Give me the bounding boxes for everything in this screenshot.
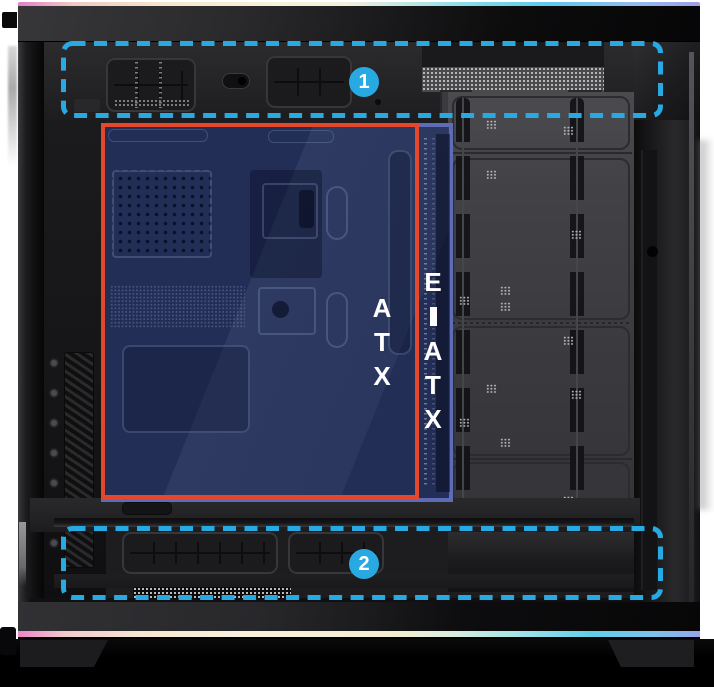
top-glass-panel: [18, 6, 700, 42]
vent-perforation: [459, 418, 470, 427]
side-shadow: [698, 140, 714, 510]
screw-icon: [375, 99, 381, 105]
bottom-fan-mount-plate-left: [122, 532, 278, 574]
panel-seam: [452, 458, 632, 460]
thumbscrew-hole: [647, 246, 658, 257]
pci-screw-column: [46, 356, 62, 564]
callout-badge-1: 1: [349, 67, 379, 97]
callout-badge-2: 2: [349, 549, 379, 579]
callout-number: 1: [358, 71, 369, 94]
shroud-groove: [54, 518, 634, 527]
pci-slot-covers: [64, 352, 94, 568]
panel-seam-dotted: [452, 322, 632, 324]
callout-number: 2: [358, 553, 369, 576]
grommet-hole: [238, 77, 246, 85]
right-inner-rail: [641, 150, 657, 590]
front-io-tab: [2, 12, 17, 28]
atx-label: ATX: [366, 291, 398, 393]
vent-perforation: [459, 296, 470, 305]
bottom-glass-panel: [18, 602, 700, 632]
vent-perforation: [500, 286, 511, 295]
vent-perforation: [486, 384, 497, 393]
rear-top-frame: [422, 42, 604, 64]
case-foot-right: [608, 640, 694, 667]
panel-seam: [452, 152, 632, 154]
mount-bracket: [74, 99, 100, 112]
cage-section: [452, 158, 630, 320]
case-floor: [54, 574, 634, 588]
pc-case-diagram: ATX E-ATX 1 2: [0, 0, 714, 687]
front-glass-highlight: [8, 46, 17, 166]
vent-perforation: [486, 170, 497, 179]
vent-mesh-strip: [114, 99, 190, 106]
top-fan-mount-plate-right: [266, 56, 352, 108]
cage-section: [452, 96, 630, 150]
cable-grommet-pill: [222, 73, 250, 89]
case-foot-left: [20, 640, 108, 667]
vent-perforation: [500, 438, 511, 447]
eatx-label: E-ATX: [417, 265, 449, 436]
vent-perforation: [571, 390, 582, 399]
front-bottom-knob: [0, 627, 16, 655]
vent-perforation: [500, 302, 511, 311]
glass-edge-highlight: [689, 52, 694, 632]
cage-section: [452, 326, 630, 456]
front-glass-highlight: [19, 522, 26, 586]
vent-perforation: [486, 120, 497, 129]
vent-perforation: [563, 126, 574, 135]
vent-perforation: [571, 230, 582, 239]
shroud-cutout: [122, 502, 172, 515]
bottom-shadow-band: [0, 639, 714, 687]
vent-perforation: [563, 336, 574, 345]
